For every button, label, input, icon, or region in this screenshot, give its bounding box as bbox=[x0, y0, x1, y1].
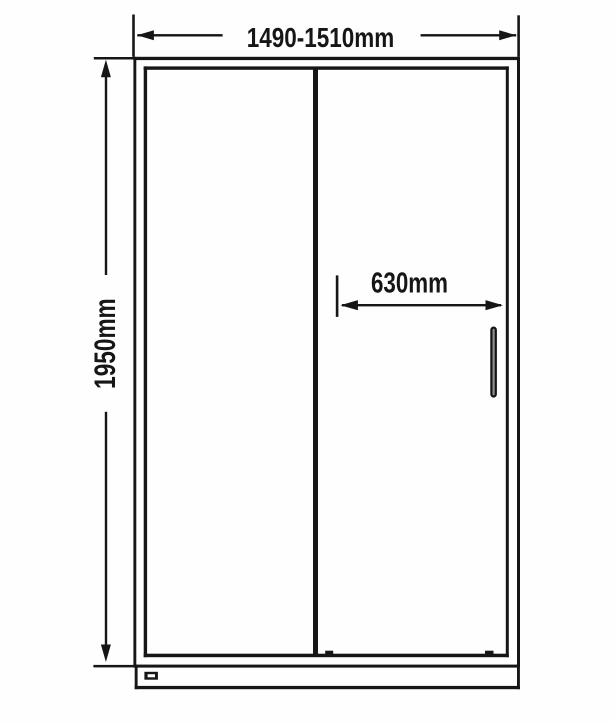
svg-text:1490-1510mm: 1490-1510mm bbox=[247, 22, 395, 53]
svg-text:630mm: 630mm bbox=[371, 268, 448, 300]
svg-text:1950mm: 1950mm bbox=[89, 298, 122, 389]
